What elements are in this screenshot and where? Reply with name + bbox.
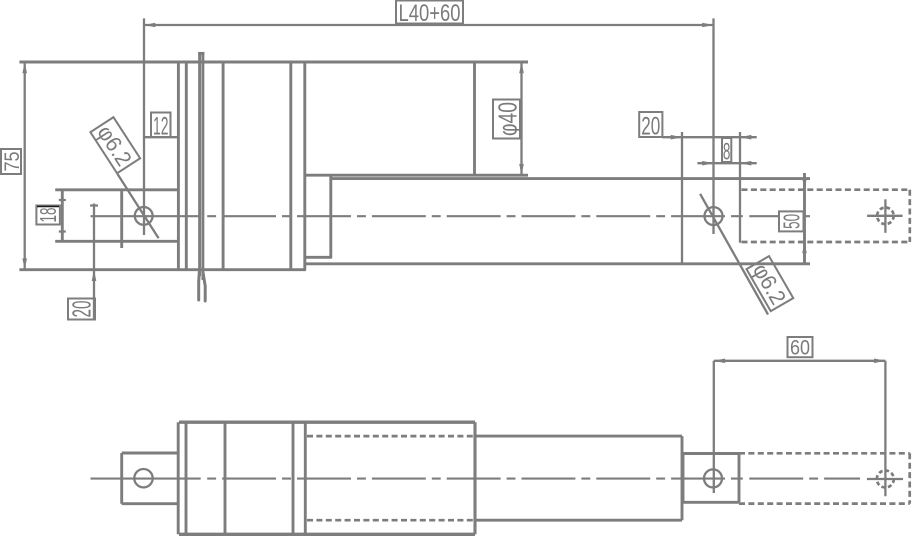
svg-text:20: 20 (67, 301, 97, 318)
svg-text:50: 50 (778, 214, 804, 229)
svg-text:φ40: φ40 (493, 102, 523, 136)
svg-text:20: 20 (641, 113, 660, 141)
svg-text:L40+60: L40+60 (399, 0, 461, 27)
svg-text:60: 60 (790, 337, 810, 360)
svg-text:75: 75 (1, 152, 24, 172)
svg-text:18: 18 (35, 208, 61, 223)
svg-text:12: 12 (153, 113, 169, 141)
svg-text:8: 8 (723, 139, 731, 166)
